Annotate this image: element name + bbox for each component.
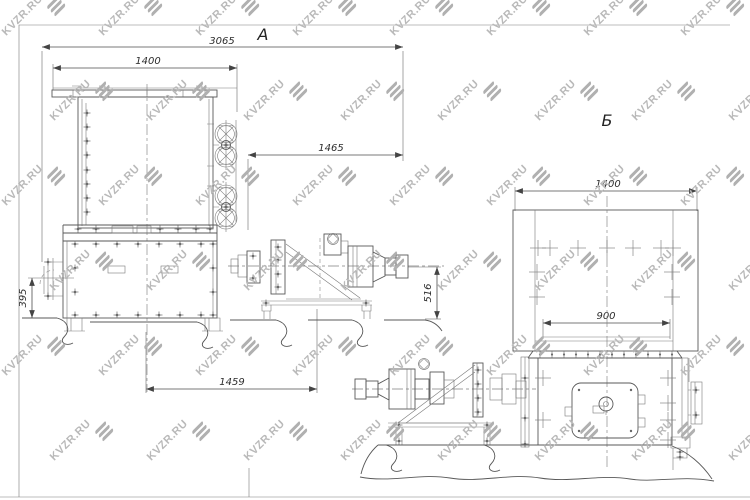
view-a: А 3065 1400 1465 395 516 1459 xyxy=(18,25,444,393)
inspection-door xyxy=(565,383,645,438)
view-b-drive-assembly xyxy=(352,359,536,446)
dim-shaft-span: 1465 xyxy=(318,143,343,154)
drawing-sheet: А 3065 1400 1465 395 516 1459 xyxy=(0,0,750,500)
dim-housing-height: 395 xyxy=(18,288,29,307)
dim-overall-length: 3065 xyxy=(209,36,234,47)
dim-frame-width-b: 1400 xyxy=(595,179,620,190)
view-a-deck-line xyxy=(22,318,442,348)
view-a-drive-assembly xyxy=(228,234,444,320)
technical-drawing: А 3065 1400 1465 395 516 1459 xyxy=(0,0,750,500)
view-b-housing xyxy=(521,351,702,470)
view-b-dimensions: 1400 900 xyxy=(515,179,697,339)
sheet-border xyxy=(0,25,750,497)
view-a-frame xyxy=(52,84,237,392)
dim-shaft-axis-height: 516 xyxy=(423,283,434,302)
view-b-deck-line xyxy=(360,445,714,481)
view-b: Б 1400 900 xyxy=(352,111,714,481)
dim-frame-width-a: 1400 xyxy=(135,56,160,67)
view-b-label: Б xyxy=(602,111,613,130)
dim-mount-span: 900 xyxy=(596,311,615,322)
dim-base-span: 1459 xyxy=(219,377,244,388)
view-a-label: А xyxy=(257,25,269,44)
